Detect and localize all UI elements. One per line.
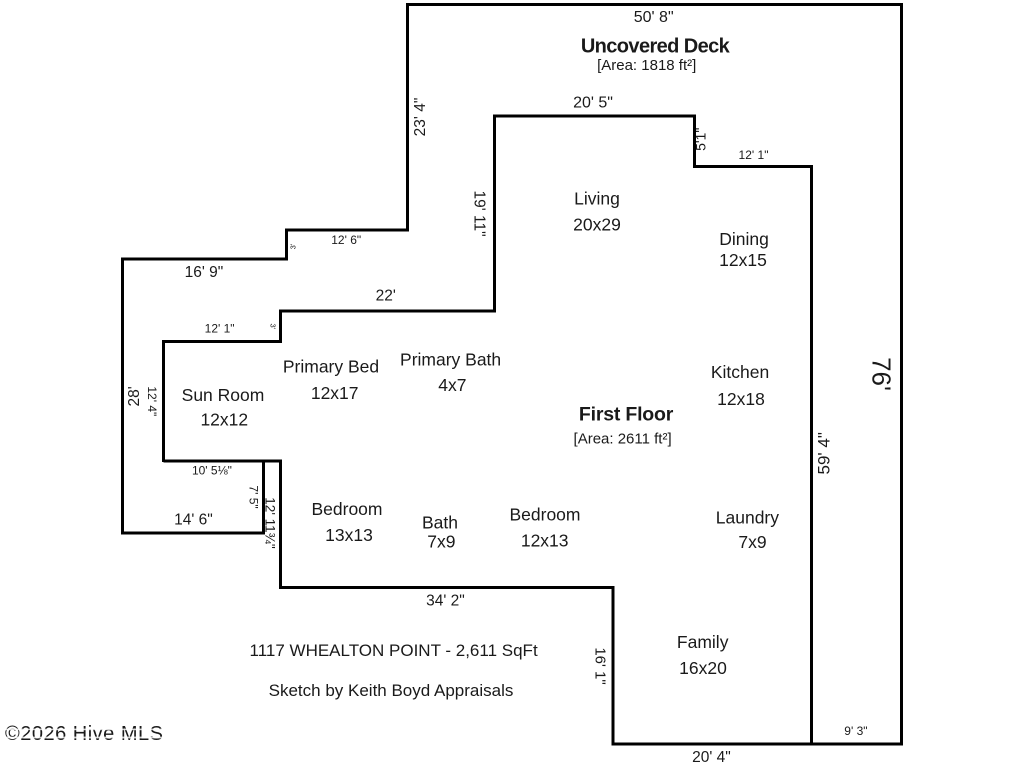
svg-text:Primary Bed: Primary Bed [283, 357, 379, 377]
svg-text:7' 5": 7' 5" [247, 485, 261, 508]
svg-text:14' 6": 14' 6" [174, 512, 213, 529]
svg-text:First Floor: First Floor [579, 404, 674, 426]
svg-text:Living: Living [574, 189, 620, 209]
svg-text:16x20: 16x20 [679, 658, 727, 678]
svg-text:Uncovered Deck: Uncovered Deck [581, 36, 731, 58]
svg-text:Dining: Dining [719, 229, 769, 249]
svg-text:16' 1": 16' 1" [591, 647, 608, 684]
svg-text:4x7: 4x7 [438, 375, 466, 395]
svg-text:1117 WHEALTON POINT - 2,611 Sq: 1117 WHEALTON POINT - 2,611 SqFt [250, 641, 538, 660]
svg-text:Family: Family [677, 632, 729, 652]
svg-text:Bedroom: Bedroom [311, 499, 382, 519]
svg-text:[Area: 2611 ft²]: [Area: 2611 ft²] [574, 431, 672, 448]
svg-text:28': 28' [126, 386, 143, 406]
svg-text:10' 5⅛": 10' 5⅛" [192, 463, 232, 477]
svg-text:3': 3' [269, 323, 278, 329]
svg-text:12' 6": 12' 6" [331, 233, 361, 247]
svg-text:20' 4": 20' 4" [692, 749, 731, 766]
svg-text:19' 11": 19' 11" [471, 191, 488, 237]
svg-text:12x12: 12x12 [200, 410, 248, 430]
svg-text:Sun Room: Sun Room [182, 385, 265, 405]
svg-text:12x15: 12x15 [719, 250, 767, 270]
svg-text:[Area: 1818 ft²]: [Area: 1818 ft²] [597, 57, 696, 74]
svg-text:12' 1": 12' 1" [739, 148, 769, 162]
svg-text:Sketch by Keith Boyd Appraisal: Sketch by Keith Boyd Appraisals [269, 681, 514, 700]
svg-text:©2026 Hive MLS: ©2026 Hive MLS [5, 723, 163, 745]
svg-text:20x29: 20x29 [573, 214, 621, 234]
svg-text:7x9: 7x9 [427, 531, 455, 551]
svg-text:34' 2": 34' 2" [426, 593, 465, 610]
svg-text:3': 3' [289, 243, 298, 249]
svg-text:76': 76' [867, 357, 897, 391]
svg-text:12x17: 12x17 [311, 383, 359, 403]
svg-text:5'1": 5'1" [693, 128, 709, 151]
svg-text:Primary Bath: Primary Bath [400, 349, 501, 369]
svg-text:Laundry: Laundry [716, 508, 779, 528]
svg-text:22': 22' [376, 288, 396, 305]
svg-text:23' 4": 23' 4" [412, 98, 429, 137]
svg-text:Bath: Bath [422, 512, 458, 532]
svg-text:12x13: 12x13 [521, 531, 569, 551]
svg-text:13x13: 13x13 [325, 525, 373, 545]
svg-text:7x9: 7x9 [738, 532, 766, 552]
svg-text:9' 3": 9' 3" [844, 724, 867, 738]
svg-text:16' 9": 16' 9" [185, 264, 224, 281]
svg-text:50' 8": 50' 8" [634, 9, 674, 26]
svg-text:20' 5": 20' 5" [573, 95, 613, 112]
svg-text:Kitchen: Kitchen [711, 362, 769, 382]
svg-text:12' 1": 12' 1" [205, 322, 235, 336]
svg-text:12' 4": 12' 4" [145, 386, 159, 416]
svg-text:12x18: 12x18 [717, 389, 765, 409]
svg-text:59' 4": 59' 4" [814, 432, 833, 474]
svg-text:12' 11¾": 12' 11¾" [263, 497, 278, 549]
svg-text:Bedroom: Bedroom [509, 505, 580, 525]
